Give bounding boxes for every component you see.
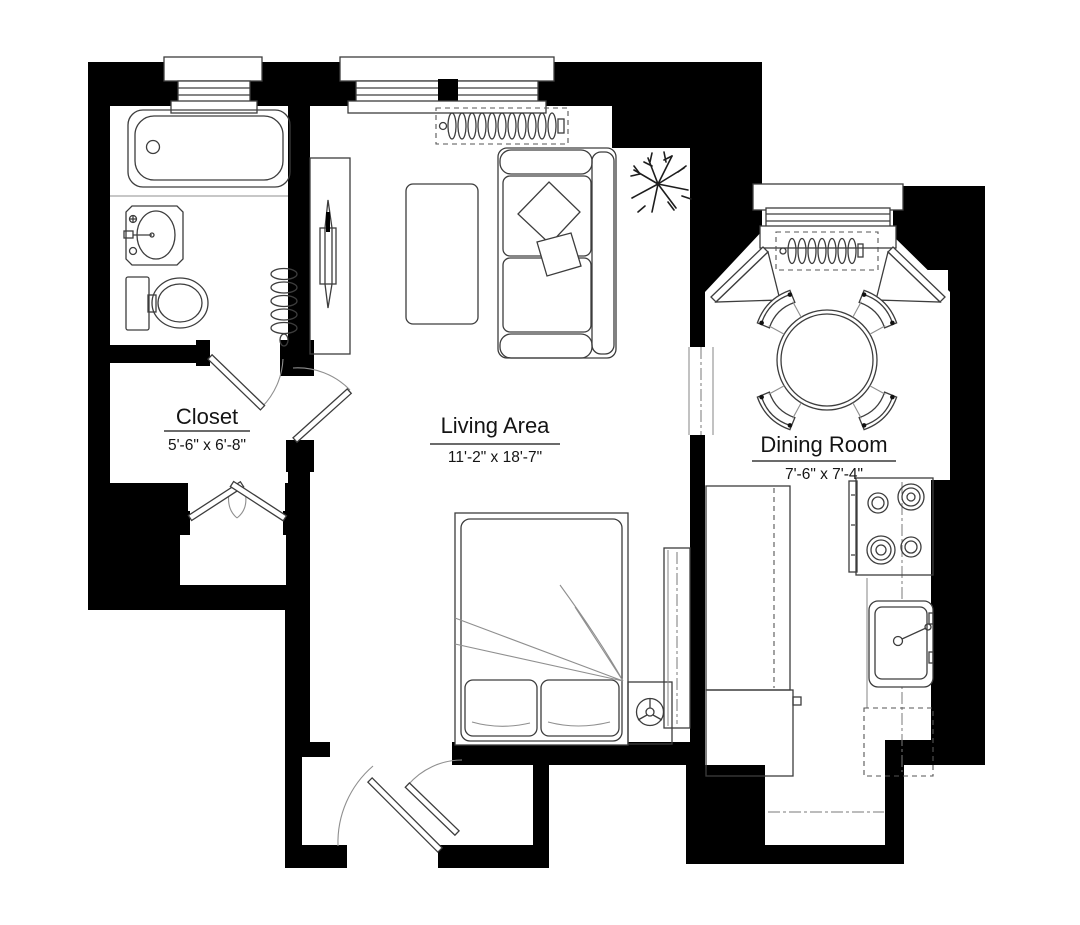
floor-plan-page: Closet 5'-6" x 6'-8" Living Area 11'-2" … xyxy=(0,0,1080,925)
bed-pillow xyxy=(541,680,619,736)
floor-plan-canvas: Closet 5'-6" x 6'-8" Living Area 11'-2" … xyxy=(0,0,1080,925)
closet-label: Closet xyxy=(176,404,238,429)
dining-room-dimensions: 7'-6" x 7'-4" xyxy=(785,466,863,483)
closet-dimensions: 5'-6" x 6'-8" xyxy=(168,437,246,454)
living-area-dimensions: 11'-2" x 18'-7" xyxy=(448,449,542,466)
living-area-label: Living Area xyxy=(441,413,551,438)
bathroom-floor xyxy=(110,106,288,345)
storage-alcove-floor xyxy=(180,533,286,585)
dining-room-label: Dining Room xyxy=(760,432,887,457)
entry-door-opening xyxy=(347,843,438,870)
living-room-window xyxy=(340,57,554,113)
kitchen-sink xyxy=(869,601,933,687)
bathroom-window xyxy=(164,57,262,113)
bed-pillow xyxy=(465,680,537,736)
double-bed xyxy=(455,513,628,745)
sofa xyxy=(498,148,616,358)
dining-table xyxy=(777,310,877,410)
